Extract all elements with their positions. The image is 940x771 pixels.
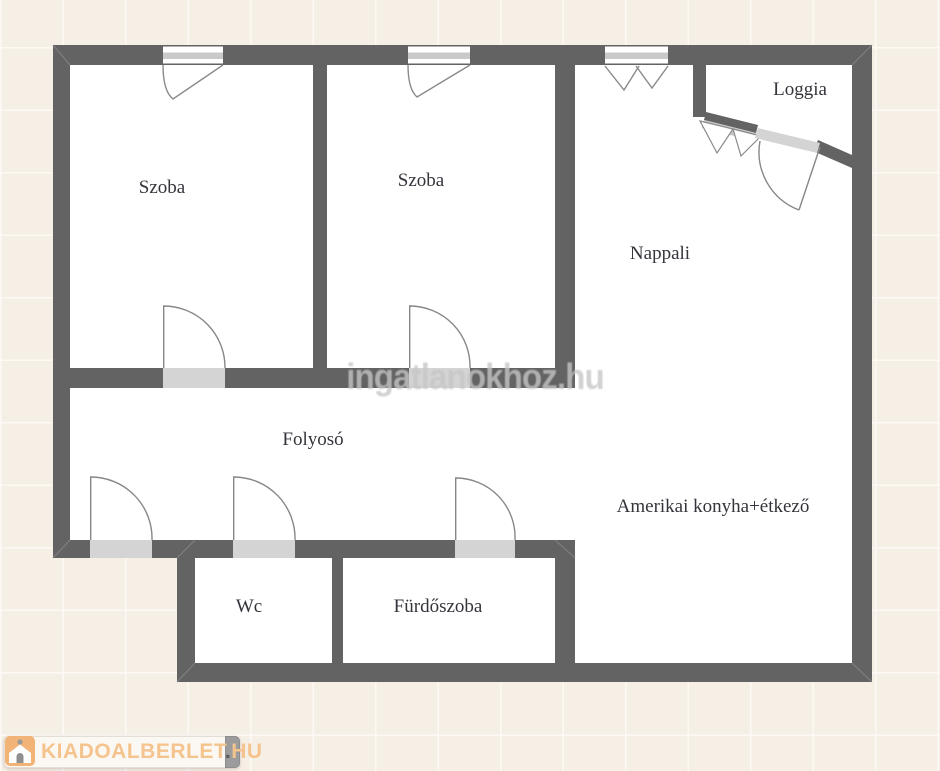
wall-szoba2-nappali	[555, 65, 575, 368]
wall-kitchen-west	[555, 558, 575, 663]
brand-name: KIADOALBERLET	[41, 740, 225, 763]
room-label-furdoszoba: Fürdőszoba	[394, 596, 483, 618]
wall-wc-furdo-divider	[332, 558, 343, 663]
wall-right	[852, 45, 872, 682]
house-logo-icon	[5, 736, 35, 766]
room-label-szoba1: Szoba	[139, 177, 185, 199]
wall-loggia-stub	[693, 65, 706, 117]
wall-bottom	[177, 663, 872, 682]
room-label-wc: Wc	[236, 596, 262, 618]
floorplan-canvas: { "rooms": { "szoba1": {"label": "Szoba"…	[0, 0, 940, 768]
house-icon	[5, 736, 35, 766]
floor-wc	[195, 558, 332, 663]
room-label-konyha-etkezo: Amerikai konyha+étkező	[617, 496, 810, 518]
room-label-nappali: Nappali	[630, 243, 690, 265]
room-label-folyoso: Folyosó	[282, 429, 343, 451]
brand-watermark-text: KIADOALBERLET.HU	[41, 737, 263, 767]
room-label-szoba2: Szoba	[398, 170, 444, 192]
brand-watermark: KIADOALBERLET.HU	[4, 736, 240, 768]
wall-left	[53, 45, 70, 558]
brand-tld: HU	[231, 740, 262, 763]
center-watermark-text: ingatlanokhoz.hu	[346, 356, 604, 398]
wall-szoba-divider	[313, 65, 327, 368]
room-label-loggia: Loggia	[773, 79, 827, 101]
wall-lowerblock-left	[177, 558, 195, 663]
